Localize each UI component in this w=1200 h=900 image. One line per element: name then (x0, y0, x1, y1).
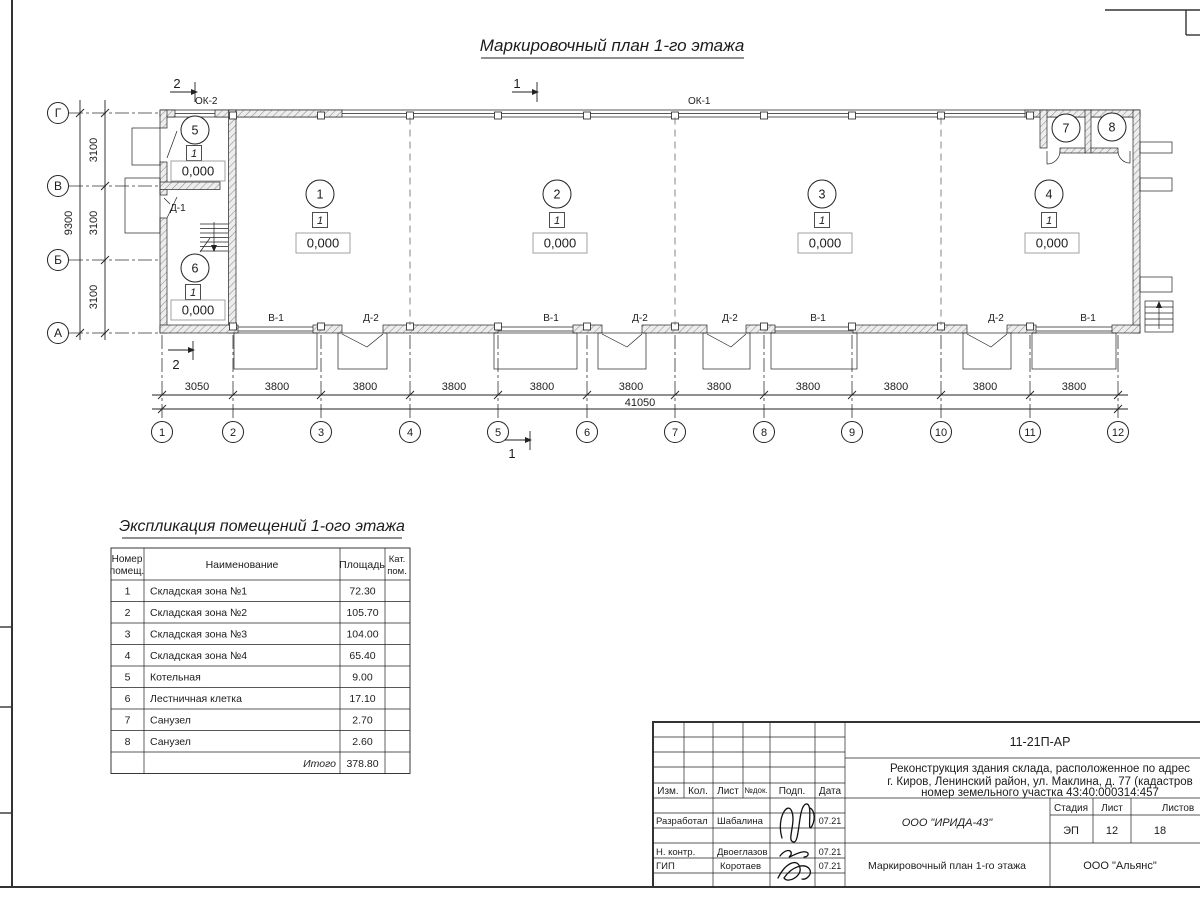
stamp-col-podp: Подп. (779, 786, 806, 797)
dim-9300: 9300 (63, 211, 75, 235)
stamp-col-izm: Изм. (657, 786, 678, 797)
dim-span: 3800 (973, 381, 997, 393)
axis-number: 7 (672, 427, 678, 439)
axis-number: 11 (1024, 427, 1035, 439)
room-marker-2: 2 1 0,000 (533, 180, 587, 253)
role-name: Коротаев (720, 861, 761, 872)
sheets-label: Листов (1162, 803, 1195, 814)
stage-label: Стадия (1054, 803, 1088, 814)
opening-label: Д-2 (722, 313, 738, 324)
stamp-sheet-title: Маркировочный план 1-го этажа (868, 860, 1026, 872)
role-name: Двоеглазов (717, 847, 768, 858)
dim-span: 3800 (707, 381, 731, 393)
table-row: 3 Складская зона №3 104.00 (125, 629, 379, 641)
design-org: ООО "ИРИДА-43" (902, 817, 994, 829)
dim-span: 3800 (442, 381, 466, 393)
svg-text:2.60: 2.60 (352, 736, 373, 748)
svg-text:0,000: 0,000 (544, 236, 577, 251)
svg-text:65.40: 65.40 (349, 650, 375, 662)
stair-room6 (200, 222, 228, 252)
axis-letter: А (54, 326, 62, 340)
explication-table: Экспликация помещений 1-ого этажа Номер … (110, 518, 410, 774)
svg-text:7: 7 (125, 715, 131, 727)
window-label-ok1: ОК-1 (688, 96, 711, 107)
title-block: Изм. Кол. Лист №док. Подп. Дата 11-21П-А… (653, 722, 1200, 887)
opening-label: В-1 (268, 313, 284, 324)
signatures (778, 804, 814, 880)
axis-letter: Б (54, 253, 62, 267)
svg-text:378.80: 378.80 (346, 758, 378, 770)
sheet-frame (0, 0, 1200, 887)
zone-dividers (410, 118, 941, 326)
svg-text:Складская зона №4: Складская зона №4 (150, 650, 247, 662)
dim-span: 3800 (530, 381, 554, 393)
role-label: ГИП (656, 861, 675, 872)
col-header: Кат. (389, 554, 406, 565)
axis-number: 9 (849, 427, 855, 439)
project-line3: номер земельного участка 43:40:000314:45… (921, 787, 1159, 799)
dim-span: 3800 (884, 381, 908, 393)
role-date: 07.21 (819, 861, 842, 871)
bottom-dimensions: 3050 3800 3800 3800 3800 3800 3800 3800 … (152, 335, 1128, 420)
axis-number: 10 (935, 427, 947, 439)
opening-label: В-1 (810, 313, 826, 324)
role-label: Разработал (656, 816, 708, 827)
sheets-total: 18 (1154, 825, 1166, 837)
element-labels: ОК-2 ОК-1 Д-1 В-1 Д-2 В-1 Д-2 Д-2 В-1 Д-… (164, 96, 1096, 324)
door-label-d1: Д-1 (170, 203, 186, 214)
svg-text:8: 8 (1109, 121, 1116, 135)
dim-span: 3050 (185, 381, 209, 393)
table-row: 7 Санузел 2.70 (125, 715, 373, 727)
svg-text:1: 1 (317, 215, 323, 227)
svg-text:1: 1 (317, 188, 324, 202)
axis-letter: В (54, 179, 62, 193)
svg-text:6: 6 (192, 262, 199, 276)
section-marks: 2 1 2 1 (168, 76, 539, 461)
room-marker-7: 7 (1052, 114, 1080, 142)
dim-total: 41050 (625, 397, 656, 409)
role-name: Шабалина (717, 816, 764, 827)
doc-code: 11-21П-АР (1010, 735, 1071, 749)
table-row: 5 Котельная 9.00 (125, 672, 373, 684)
svg-text:1: 1 (190, 287, 196, 299)
drawing-sheet: Маркировочный план 1-го этажа Г В Б А 31… (0, 0, 1200, 900)
svg-text:8: 8 (125, 736, 131, 748)
svg-text:1: 1 (1046, 215, 1052, 227)
dim-span: 3800 (619, 381, 643, 393)
svg-text:Итого: Итого (303, 758, 336, 770)
svg-text:104.00: 104.00 (346, 629, 378, 641)
axis-number: 3 (318, 427, 324, 439)
axis-number: 2 (230, 427, 236, 439)
svg-text:72.30: 72.30 (349, 586, 375, 598)
axis-number: 4 (407, 427, 413, 439)
svg-text:0,000: 0,000 (182, 164, 215, 179)
axis-number: 5 (495, 427, 501, 439)
svg-text:Складская зона №2: Складская зона №2 (150, 607, 247, 619)
table-row: 4 Складская зона №4 65.40 (125, 650, 376, 662)
dim-span: 3800 (796, 381, 820, 393)
table-total-row: Итого 378.80 (303, 758, 379, 770)
svg-text:Санузел: Санузел (150, 715, 191, 727)
stamp-col-ndok: №док. (744, 786, 767, 795)
svg-text:Складская зона №1: Складская зона №1 (150, 586, 247, 598)
section-mark-2: 2 (173, 76, 180, 91)
svg-text:3: 3 (125, 629, 131, 641)
svg-text:2: 2 (125, 607, 131, 619)
project-line1: Реконструкция здания склада, расположенн… (890, 763, 1190, 775)
dim-span: 3800 (353, 381, 377, 393)
axis-number: 8 (761, 427, 767, 439)
dim-3100: 3100 (88, 211, 100, 235)
left-dimensions: 3100 3100 3100 9300 (63, 100, 109, 340)
opening-label: Д-2 (988, 313, 1004, 324)
section-mark-2: 2 (172, 357, 179, 372)
svg-text:17.10: 17.10 (349, 693, 375, 705)
building-walls (160, 110, 1140, 347)
axis-number: 6 (584, 427, 590, 439)
svg-text:0,000: 0,000 (307, 236, 340, 251)
role-date: 07.21 (819, 847, 842, 857)
axis-letter: Г (55, 106, 62, 120)
svg-text:Котельная: Котельная (150, 672, 201, 684)
columns (230, 112, 1034, 330)
col-header: помещ. (110, 566, 144, 577)
stamp-col-kol: Кол. (688, 786, 708, 797)
dim-span: 3800 (1062, 381, 1086, 393)
svg-text:7: 7 (1063, 122, 1070, 136)
opening-label: Д-2 (632, 313, 648, 324)
svg-text:4: 4 (1046, 188, 1053, 202)
axis-number: 1 (159, 427, 165, 439)
stamp-col-list: Лист (717, 786, 739, 797)
svg-text:0,000: 0,000 (182, 303, 215, 318)
opening-label: В-1 (1080, 313, 1096, 324)
col-header: Номер (112, 554, 143, 565)
svg-text:9.00: 9.00 (352, 672, 373, 684)
svg-text:0,000: 0,000 (1036, 236, 1069, 251)
svg-text:2: 2 (554, 188, 561, 202)
column-axes: 1 2 3 4 5 6 7 8 9 10 11 12 (152, 422, 1129, 443)
svg-text:2.70: 2.70 (352, 715, 373, 727)
room-marker-3: 3 1 0,000 (798, 180, 852, 253)
dim-3100: 3100 (88, 138, 100, 162)
svg-text:105.70: 105.70 (346, 607, 378, 619)
svg-text:Лестничная клетка: Лестничная клетка (150, 693, 242, 705)
table-row: 6 Лестничная клетка 17.10 (125, 693, 376, 705)
col-header: Наименование (206, 559, 279, 571)
svg-text:4: 4 (125, 650, 131, 662)
axis-number: 12 (1112, 427, 1124, 439)
opening-label: Д-2 (363, 313, 379, 324)
dim-3100: 3100 (88, 285, 100, 309)
svg-text:1: 1 (554, 215, 560, 227)
room-marker-4: 4 1 0,000 (1025, 180, 1079, 253)
svg-text:Санузел: Санузел (150, 736, 191, 748)
table-row: 1 Складская зона №1 72.30 (125, 586, 376, 598)
svg-text:1: 1 (191, 148, 197, 160)
section-mark-1: 1 (508, 446, 515, 461)
col-header: пом. (387, 566, 407, 577)
stamp-col-data: Дата (819, 786, 842, 797)
svg-text:5: 5 (192, 124, 199, 138)
table-row: 2 Складская зона №2 105.70 (125, 607, 379, 619)
room-marker-8: 8 (1098, 113, 1126, 141)
plan-title: Маркировочный план 1-го этажа (480, 36, 745, 55)
room-marker-5: 5 1 0,000 (171, 116, 225, 181)
col-header: Площадь (339, 559, 385, 571)
svg-text:1: 1 (819, 215, 825, 227)
dim-span: 3800 (265, 381, 289, 393)
table-row: 8 Санузел 2.60 (125, 736, 373, 748)
room-markers: 1 1 0,000 2 1 0,000 3 1 0,000 4 1 0,000 … (171, 113, 1126, 320)
svg-text:1: 1 (125, 586, 131, 598)
opening-label: В-1 (543, 313, 559, 324)
role-label: Н. контр. (656, 847, 695, 858)
svg-text:0,000: 0,000 (809, 236, 842, 251)
section-mark-1: 1 (513, 76, 520, 91)
window-label-ok2: ОК-2 (195, 96, 218, 107)
room-marker-6: 6 1 0,000 (171, 254, 225, 320)
room-marker-1: 1 1 0,000 (296, 180, 350, 253)
stage-value: ЭП (1063, 825, 1079, 837)
sheet-label: Лист (1101, 803, 1123, 814)
svg-text:Складская зона №3: Складская зона №3 (150, 629, 247, 641)
svg-text:5: 5 (125, 672, 131, 684)
svg-text:6: 6 (125, 693, 131, 705)
client-org: ООО "Альянс" (1083, 860, 1157, 872)
sheet-number: 12 (1106, 825, 1118, 837)
plan-title-group: Маркировочный план 1-го этажа (480, 36, 745, 58)
svg-text:3: 3 (819, 188, 826, 202)
explication-title: Экспликация помещений 1-ого этажа (119, 518, 405, 535)
role-date: 07.21 (819, 816, 842, 826)
